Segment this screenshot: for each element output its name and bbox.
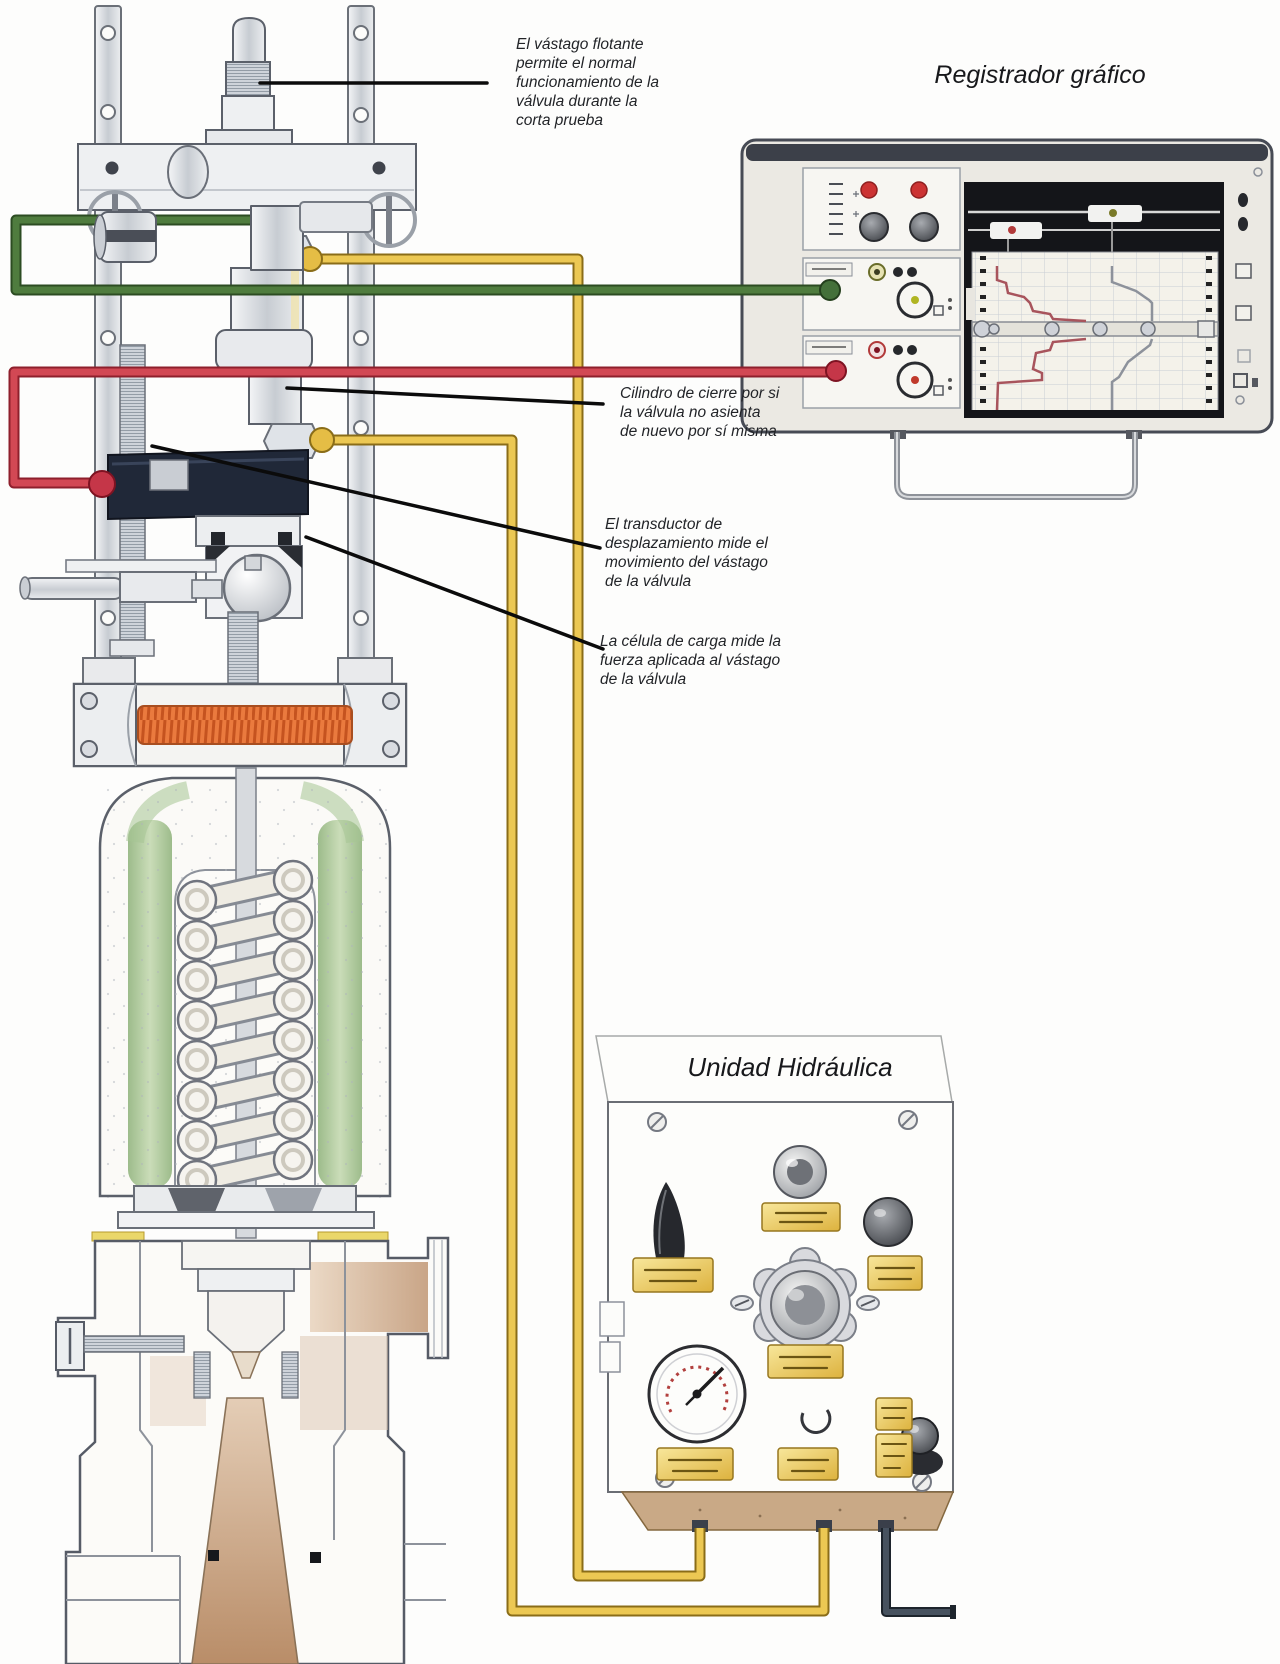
diagram-canvas: Registrador gráfico Unidad Hidráulica El… — [0, 0, 1280, 1664]
unit-base-bevel — [622, 1492, 953, 1530]
hydraulic-unit-title: Unidad Hidráulica — [650, 1052, 930, 1082]
annotation-closing-cylinder: Cilindro de cierre por si la válvula no … — [620, 384, 780, 441]
recorder-module-top — [803, 168, 960, 250]
indicator-light — [911, 182, 927, 198]
chart-area — [964, 182, 1224, 418]
control-knob — [860, 213, 888, 241]
cable-dark — [886, 1528, 956, 1619]
recorder-title: Registrador gráfico — [880, 60, 1200, 90]
lower-stem — [228, 612, 258, 686]
control-knob — [910, 213, 938, 241]
relief-valve-knob — [774, 1146, 826, 1198]
pressure-gauge — [649, 1346, 745, 1442]
annotation-load-cell: La célula de carga mide la fuerza aplica… — [600, 632, 796, 689]
air-regulator-knob — [864, 1198, 912, 1246]
hydraulic-unit — [596, 1036, 953, 1532]
indicator-light — [861, 182, 877, 198]
annotation-displacement-transducer: El transductor de desplazamiento mide el… — [605, 515, 773, 591]
valve-test-diagram — [0, 0, 1280, 1664]
valve-body — [56, 1238, 448, 1664]
yellow-connector — [310, 428, 334, 452]
load-coil — [138, 706, 352, 744]
recorder-handle — [890, 430, 1142, 497]
pen-carriage-red — [990, 222, 1042, 239]
red-connector — [89, 471, 115, 497]
red-connector — [826, 361, 846, 381]
crossbar — [78, 144, 416, 210]
side-lever — [20, 560, 222, 602]
load-cell-bracket — [74, 684, 406, 766]
annotation-floating-stem: El vástago flotante permite el normal fu… — [516, 35, 674, 130]
green-connector — [820, 280, 840, 300]
chart-recorder — [742, 140, 1272, 497]
